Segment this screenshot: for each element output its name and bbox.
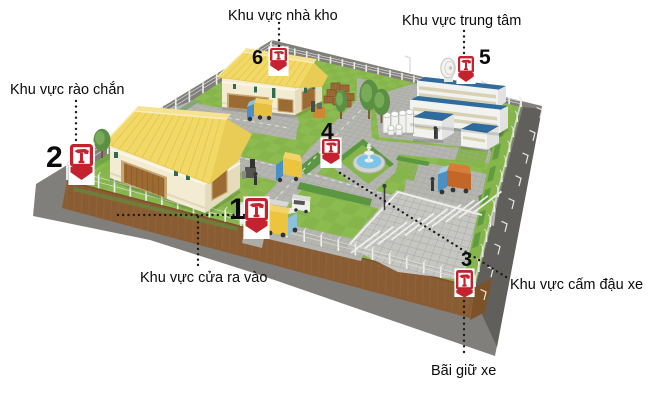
svg-text:Khu vực trung tâm: Khu vực trung tâm xyxy=(402,13,521,29)
svg-text:Bãi giữ xe: Bãi giữ xe xyxy=(431,363,496,379)
svg-text:Khu vực cửa ra vào: Khu vực cửa ra vào xyxy=(140,270,267,286)
svg-text:5: 5 xyxy=(479,46,491,69)
svg-text:Khu vực cấm đậu xe: Khu vực cấm đậu xe xyxy=(510,277,643,293)
svg-text:1: 1 xyxy=(229,193,246,226)
svg-text:Khu vực rào chắn: Khu vực rào chắn xyxy=(10,81,125,98)
svg-text:4: 4 xyxy=(321,118,334,144)
svg-text:6: 6 xyxy=(252,47,263,69)
svg-text:Khu vực nhà kho: Khu vực nhà kho xyxy=(228,8,338,24)
svg-text:2: 2 xyxy=(46,141,63,174)
